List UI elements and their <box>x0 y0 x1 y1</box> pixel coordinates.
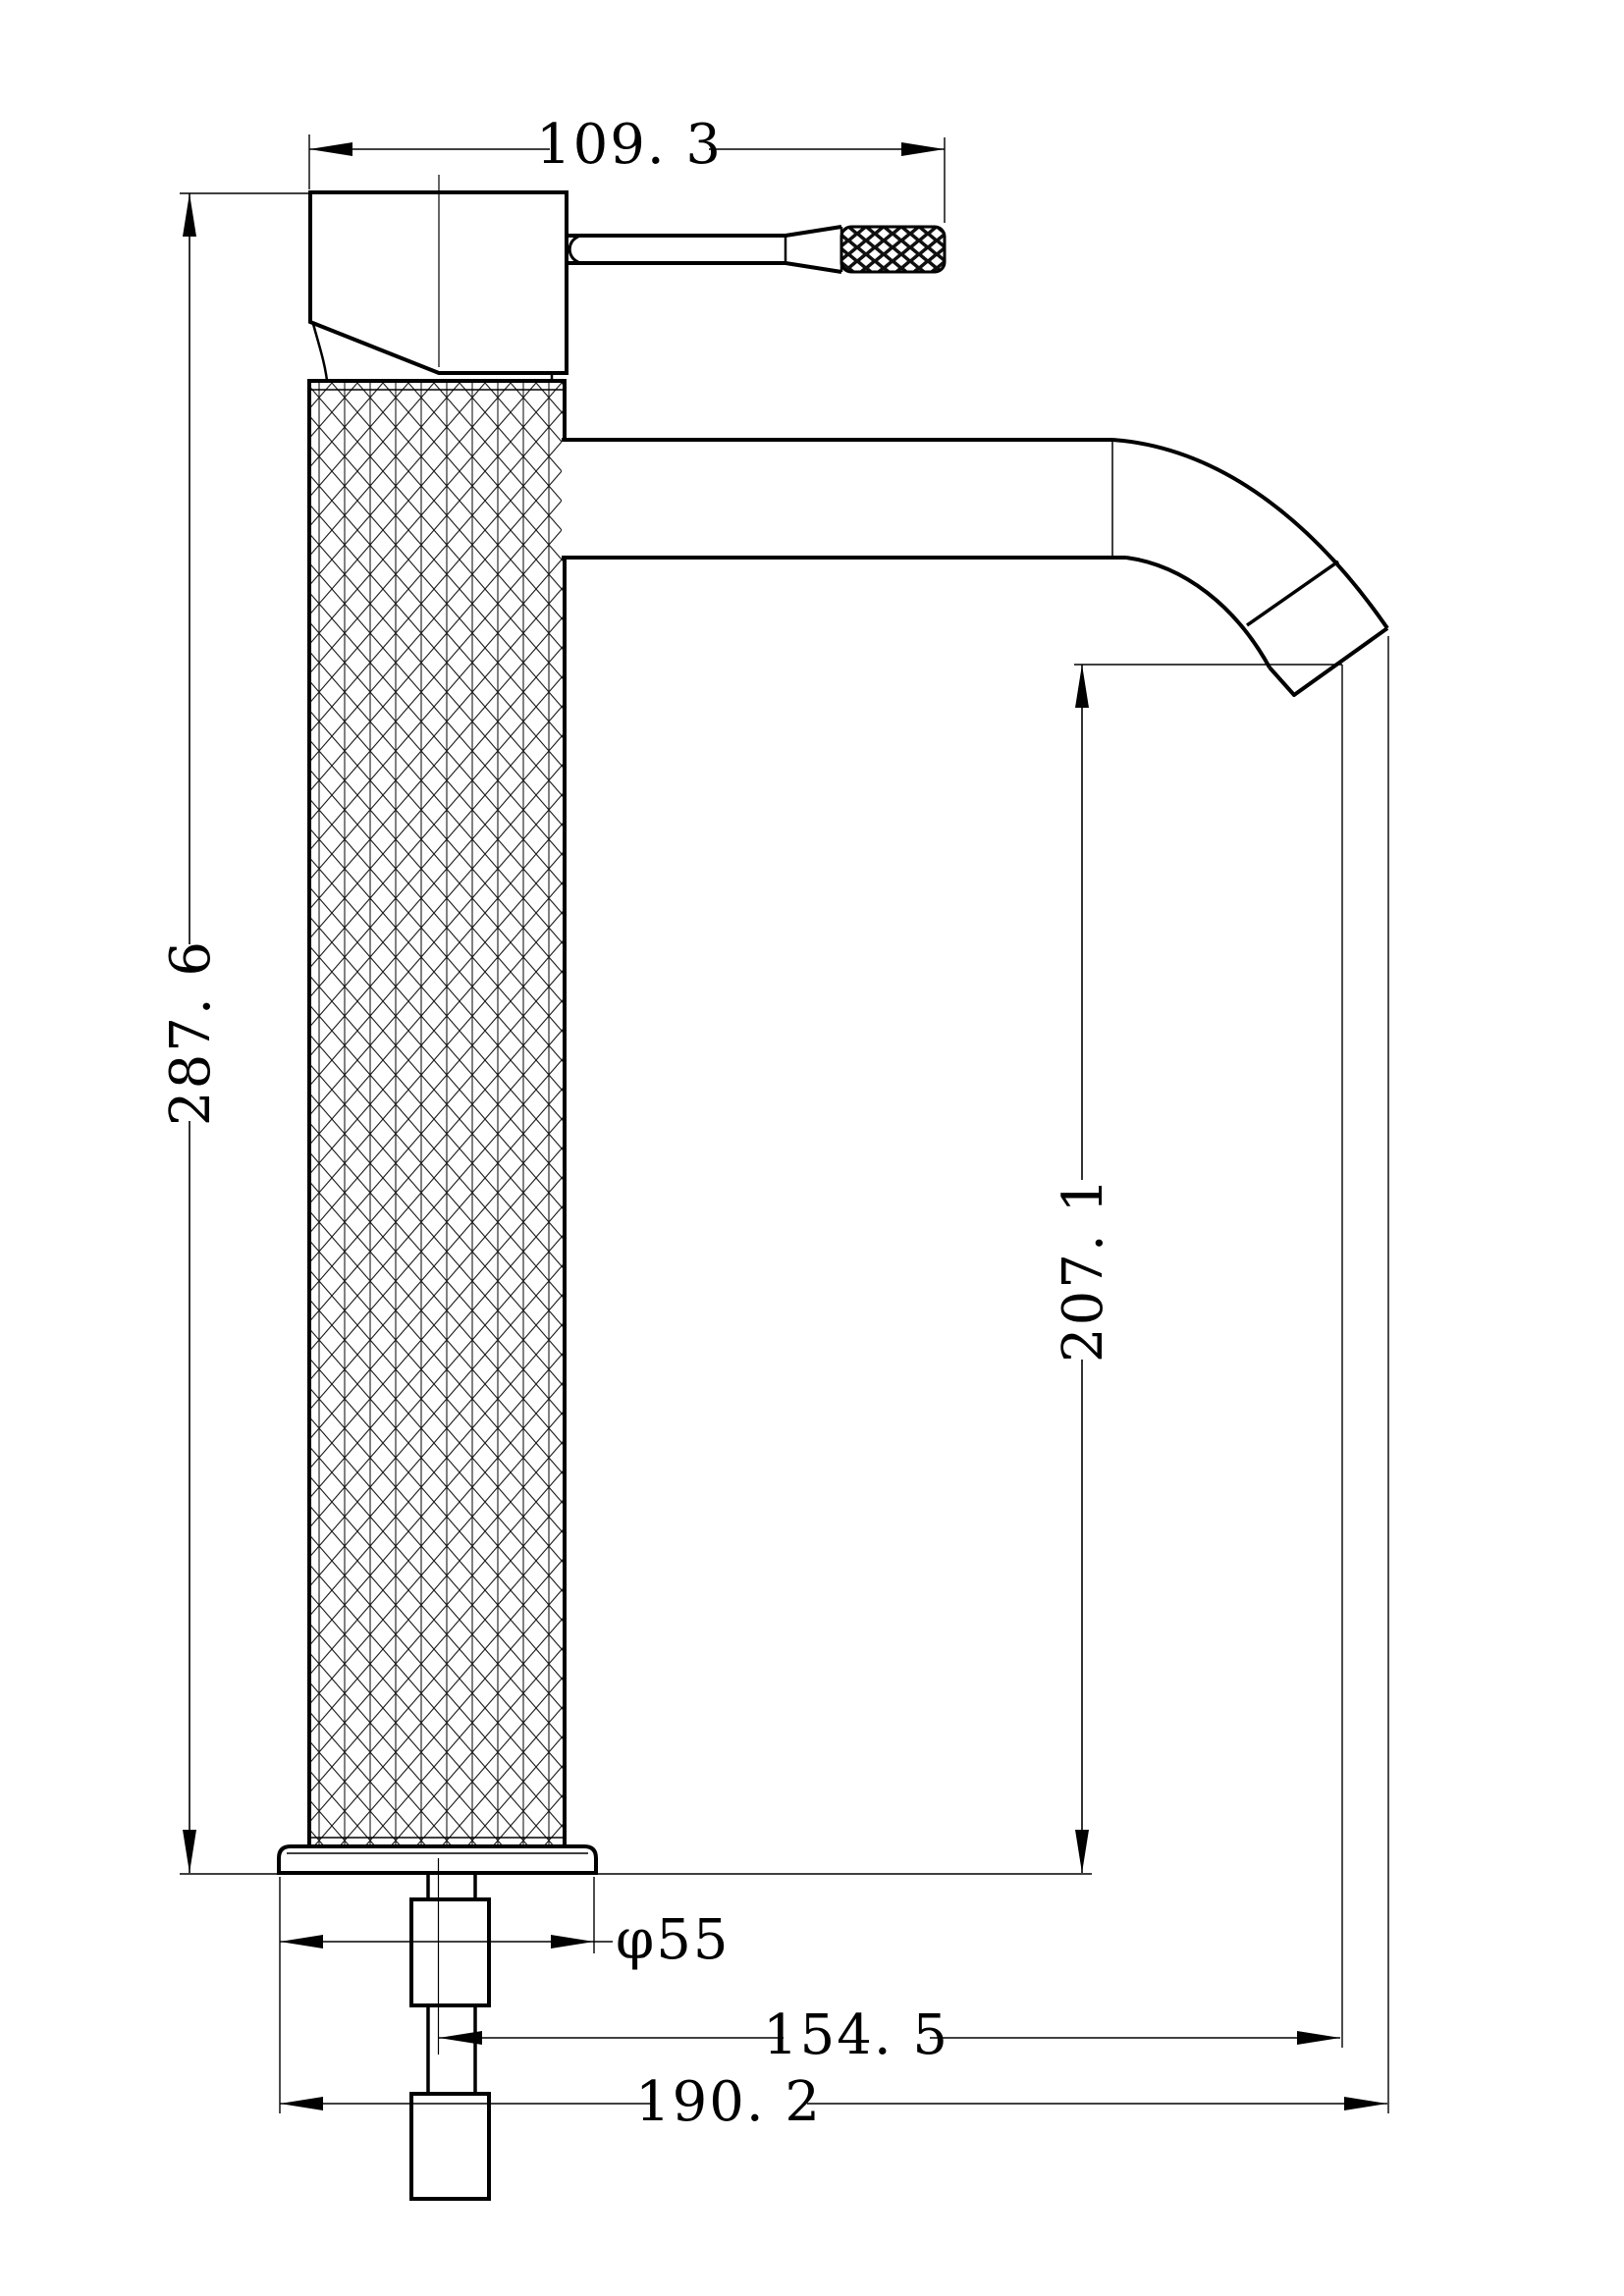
knurled-body <box>309 381 565 1846</box>
base-plate-outline <box>279 1846 596 1873</box>
dim-label-overall-height: 287. 6 <box>159 939 223 1126</box>
spout <box>562 440 1387 695</box>
dim-label-spout-reach: 154. 5 <box>763 2003 949 2067</box>
dim-label-base-diameter: φ55 <box>616 1908 730 1972</box>
handle-head <box>310 175 567 381</box>
mounting-nut-upper <box>411 1899 489 2005</box>
dim-label-handle-reach: 109. 3 <box>536 113 723 177</box>
faucet-technical-drawing: 109. 3 287. 6 207. 1 φ55 154. 5 190. 2 <box>0 0 1624 2296</box>
threaded-shank-upper <box>428 1873 475 1899</box>
dimension-overall-height: 287. 6 <box>159 193 310 1874</box>
lever-taper-lines <box>785 227 841 272</box>
dim-label-spout-height: 207. 1 <box>1052 1176 1115 1362</box>
base-plate <box>279 1846 596 1873</box>
lever-handle <box>567 227 945 272</box>
drawing-page: 109. 3 287. 6 207. 1 φ55 154. 5 190. 2 <box>0 0 1624 2296</box>
dimension-spout-height: 207. 1 <box>596 665 1342 1874</box>
body-outline <box>309 381 565 1846</box>
threaded-shank-lower <box>428 2005 475 2094</box>
lever-bar-lines <box>567 236 785 263</box>
cartridge-collar-curve <box>313 324 327 381</box>
dim-label-overall-reach: 190. 2 <box>635 2070 822 2134</box>
lever-pivot-arc <box>569 237 578 262</box>
knurled-grip <box>841 227 945 272</box>
mounting-nut-lower <box>411 2094 489 2199</box>
tailpiece <box>411 1858 489 2199</box>
